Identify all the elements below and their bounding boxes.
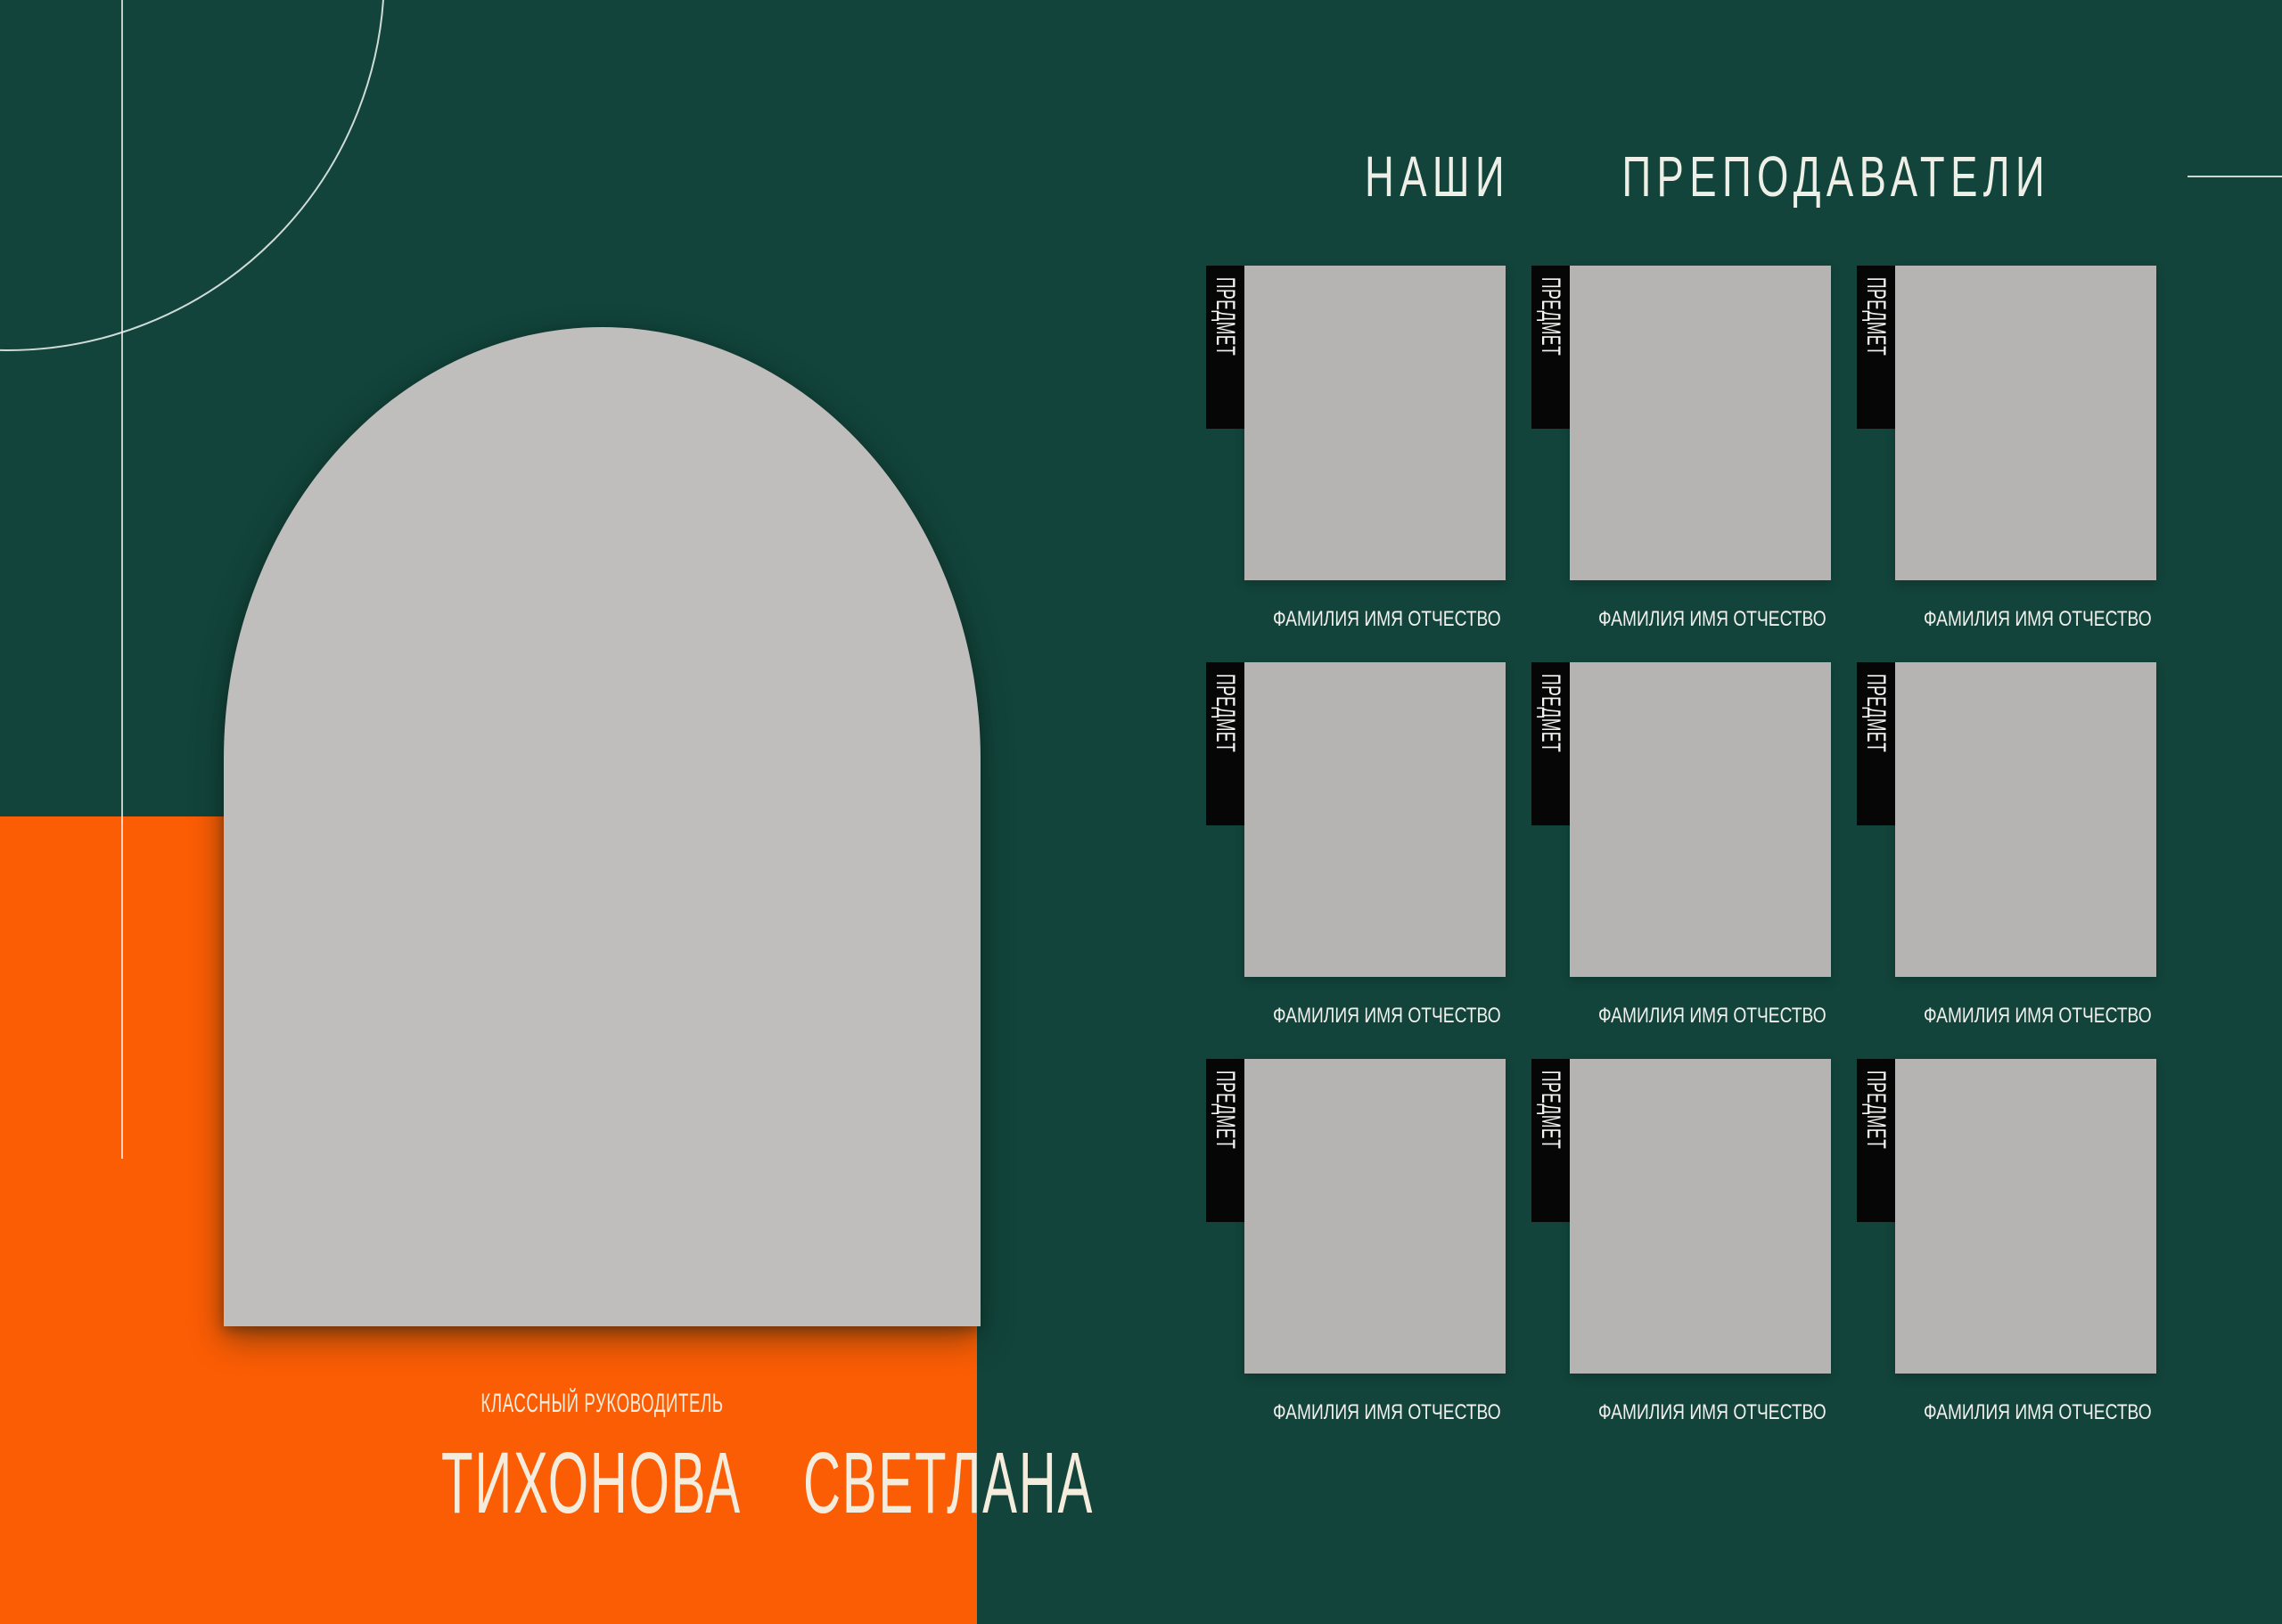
subject-tab-label: ПРЕДМЕТ (1531, 674, 1570, 757)
subject-tab: ПРЕДМЕТ (1206, 662, 1244, 825)
subject-tab-label: ПРЕДМЕТ (1857, 1070, 1895, 1153)
subject-tab: ПРЕДМЕТ (1206, 266, 1244, 429)
title-rule-line (2188, 176, 2282, 177)
subject-tab-label: ПРЕДМЕТ (1857, 674, 1895, 757)
class-teacher-role-label: КЛАССНЫЙ РУКОВОДИТЕЛЬ (224, 1389, 981, 1419)
teacher-name-caption: ФАМИЛИЯ ИМЯ ОТЧЕСТВО (1895, 607, 2156, 632)
teacher-name-caption-text: ФАМИЛИЯ ИМЯ ОТЧЕСТВО (1598, 1400, 1826, 1425)
teacher-photo-placeholder (1244, 266, 1506, 580)
teachers-grid: ПРЕДМЕТ ФАМИЛИЯ ИМЯ ОТЧЕСТВО ПРЕДМЕТ ФАМ… (1206, 266, 2156, 1425)
teacher-name-caption: ФАМИЛИЯ ИМЯ ОТЧЕСТВО (1570, 1004, 1831, 1029)
subject-tab-label: ПРЕДМЕТ (1206, 277, 1244, 360)
subject-tab: ПРЕДМЕТ (1857, 662, 1895, 825)
teacher-card: ПРЕДМЕТ ФАМИЛИЯ ИМЯ ОТЧЕСТВО (1531, 1059, 1831, 1425)
teacher-photo-placeholder (1244, 1059, 1506, 1374)
subject-tab: ПРЕДМЕТ (1531, 662, 1570, 825)
teacher-photo-placeholder (1895, 1059, 2156, 1374)
subject-tab: ПРЕДМЕТ (1531, 266, 1570, 429)
teacher-card: ПРЕДМЕТ ФАМИЛИЯ ИМЯ ОТЧЕСТВО (1857, 1059, 2156, 1425)
class-teacher-name: ТИХОНОВА СВЕТЛАНА (224, 1437, 981, 1530)
subject-tab-label: ПРЕДМЕТ (1531, 277, 1570, 360)
teacher-name-caption: ФАМИЛИЯ ИМЯ ОТЧЕСТВО (1895, 1400, 2156, 1425)
teacher-name-caption-text: ФАМИЛИЯ ИМЯ ОТЧЕСТВО (1598, 607, 1826, 632)
teacher-name-caption-text: ФАМИЛИЯ ИМЯ ОТЧЕСТВО (1273, 1004, 1501, 1029)
teacher-photo-placeholder (1895, 662, 2156, 977)
yearbook-spread: КЛАССНЫЙ РУКОВОДИТЕЛЬ ТИХОНОВА СВЕТЛАНА … (0, 0, 2282, 1624)
teacher-name-caption-text: ФАМИЛИЯ ИМЯ ОТЧЕСТВО (1598, 1004, 1826, 1029)
teacher-card: ПРЕДМЕТ ФАМИЛИЯ ИМЯ ОТЧЕСТВО (1531, 662, 1831, 1029)
teacher-card: ПРЕДМЕТ ФАМИЛИЯ ИМЯ ОТЧЕСТВО (1531, 266, 1831, 632)
teacher-card: ПРЕДМЕТ ФАМИЛИЯ ИМЯ ОТЧЕСТВО (1206, 662, 1506, 1029)
teacher-name-caption-text: ФАМИЛИЯ ИМЯ ОТЧЕСТВО (1273, 607, 1501, 632)
teacher-name-caption-text: ФАМИЛИЯ ИМЯ ОТЧЕСТВО (1924, 1004, 2152, 1029)
teacher-card: ПРЕДМЕТ ФАМИЛИЯ ИМЯ ОТЧЕСТВО (1206, 266, 1506, 632)
subject-tab-label: ПРЕДМЕТ (1206, 1070, 1244, 1153)
subject-tab-label: ПРЕДМЕТ (1531, 1070, 1570, 1153)
teachers-title-row: НАШИ ПРЕПОДАВАТЕЛИ (1365, 145, 2282, 208)
teacher-name-caption: ФАМИЛИЯ ИМЯ ОТЧЕСТВО (1244, 1400, 1506, 1425)
teacher-name-caption-text: ФАМИЛИЯ ИМЯ ОТЧЕСТВО (1273, 1400, 1501, 1425)
subject-tab: ПРЕДМЕТ (1206, 1059, 1244, 1222)
subject-tab: ПРЕДМЕТ (1857, 266, 1895, 429)
teacher-card: ПРЕДМЕТ ФАМИЛИЯ ИМЯ ОТЧЕСТВО (1857, 662, 2156, 1029)
teacher-photo-placeholder (1244, 662, 1506, 977)
teacher-name-caption: ФАМИЛИЯ ИМЯ ОТЧЕСТВО (1895, 1004, 2156, 1029)
teacher-name-caption: ФАМИЛИЯ ИМЯ ОТЧЕСТВО (1244, 1004, 1506, 1029)
class-teacher-name-text: ТИХОНОВА СВЕТЛАНА (441, 1437, 1094, 1530)
teacher-card: ПРЕДМЕТ ФАМИЛИЯ ИМЯ ОТЧЕСТВО (1206, 1059, 1506, 1425)
page-title: НАШИ ПРЕПОДАВАТЕЛИ (1365, 145, 2050, 208)
teacher-name-caption-text: ФАМИЛИЯ ИМЯ ОТЧЕСТВО (1924, 1400, 2152, 1425)
decor-circle-arc (0, 0, 384, 350)
teacher-name-caption: ФАМИЛИЯ ИМЯ ОТЧЕСТВО (1244, 607, 1506, 632)
teacher-photo-placeholder (1570, 662, 1831, 977)
teacher-photo-placeholder (1895, 266, 2156, 580)
teacher-photo-placeholder (1570, 266, 1831, 580)
teacher-name-caption-text: ФАМИЛИЯ ИМЯ ОТЧЕСТВО (1924, 607, 2152, 632)
subject-tab-label: ПРЕДМЕТ (1206, 674, 1244, 757)
class-teacher-photo-placeholder (224, 327, 981, 1326)
class-teacher-role-text: КЛАССНЫЙ РУКОВОДИТЕЛЬ (480, 1389, 723, 1419)
teacher-card: ПРЕДМЕТ ФАМИЛИЯ ИМЯ ОТЧЕСТВО (1857, 266, 2156, 632)
subject-tab: ПРЕДМЕТ (1531, 1059, 1570, 1222)
subject-tab: ПРЕДМЕТ (1857, 1059, 1895, 1222)
teacher-name-caption: ФАМИЛИЯ ИМЯ ОТЧЕСТВО (1570, 1400, 1831, 1425)
teacher-name-caption: ФАМИЛИЯ ИМЯ ОТЧЕСТВО (1570, 607, 1831, 632)
subject-tab-label: ПРЕДМЕТ (1857, 277, 1895, 360)
teacher-photo-placeholder (1570, 1059, 1831, 1374)
